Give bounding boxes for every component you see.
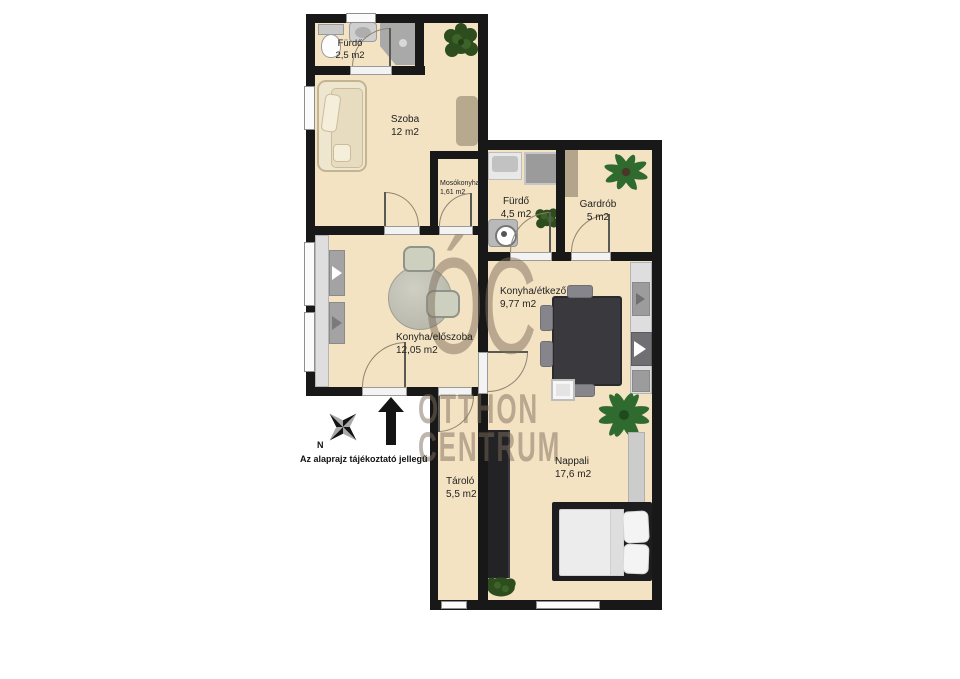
room-label-gardrob: Gardrób 5 m2 [563, 199, 633, 224]
stool-top [556, 384, 570, 396]
room-label-konyha-eloszoba: Konyha/előszoba 12,05 m2 [396, 332, 473, 357]
room-area: 1,61 m2 [440, 189, 480, 198]
door-leaf [470, 193, 472, 226]
pillow [622, 510, 650, 543]
room-area: 12 m2 [370, 127, 440, 140]
room-label-mosokonyha: Mosókonyha 1,61 m2 [440, 180, 480, 198]
wall [415, 23, 424, 66]
room-name: Nappali [555, 456, 591, 469]
door-threshold [362, 387, 407, 396]
room-area: 4,5 m2 [488, 209, 544, 222]
compass-icon [322, 406, 364, 448]
stool [551, 379, 575, 401]
window [346, 13, 376, 23]
chair [540, 341, 553, 367]
floorplan-canvas: ÓC OTTHON CENTRUM Fürdő 2,5 m2 Szoba 12 … [0, 0, 960, 679]
watermark-line2: CENTRUM [418, 426, 561, 468]
kitchen-appliance [329, 250, 345, 296]
door-leaf [549, 212, 551, 252]
room-area: 17,6 m2 [555, 469, 591, 482]
door-threshold [350, 66, 392, 75]
shower-drain [399, 39, 407, 47]
kitchen-appliance [329, 302, 345, 344]
door-leaf [384, 192, 386, 226]
room-label-tarolo: Tároló 5,5 m2 [446, 476, 477, 501]
window [441, 601, 467, 609]
wall [306, 14, 478, 23]
kitchen-counter [315, 235, 329, 387]
bathtub-basin [492, 156, 518, 172]
sofa-cushion [333, 144, 351, 162]
room-name: Fürdő [488, 196, 544, 209]
room-name: Fürdő [322, 38, 378, 50]
window [536, 601, 600, 609]
kitchen-appliance [632, 282, 650, 316]
room-area: 12,05 m2 [396, 345, 473, 358]
plant-icon [442, 22, 480, 62]
room-area: 9,77 m2 [500, 299, 566, 312]
rug [628, 432, 645, 504]
room-label-furdo-small: Fürdő 2,5 m2 [322, 38, 378, 62]
room-name: Mosókonyha [440, 180, 480, 189]
room-area: 5,5 m2 [446, 489, 477, 502]
window [304, 86, 315, 130]
room-name: Tároló [446, 476, 477, 489]
door-threshold [384, 226, 420, 235]
north-arrow-icon [377, 397, 405, 445]
wall [478, 140, 662, 150]
cabinet [456, 96, 478, 146]
wall [652, 140, 662, 610]
appliance-marker [636, 293, 645, 305]
chair [567, 285, 593, 298]
room-label-konyha-etkezo: Konyha/étkező 9,77 m2 [500, 286, 566, 311]
door-threshold [571, 252, 611, 261]
appliance-marker [634, 341, 646, 357]
bathtub [488, 152, 522, 180]
appliance-marker [332, 266, 342, 280]
room-area: 2,5 m2 [322, 50, 378, 62]
window [304, 242, 315, 306]
plant-icon [484, 574, 518, 600]
kitchen-appliance [632, 370, 650, 392]
appliance-marker [332, 316, 342, 330]
wall [430, 151, 438, 226]
door-leaf [389, 28, 391, 67]
room-name: Konyha/étkező [500, 286, 566, 299]
disclaimer-text: Az alaprajz tájékoztató jellegű [300, 454, 428, 464]
wardrobe [565, 150, 578, 197]
bed [552, 502, 652, 581]
room-label-szoba: Szoba 12 m2 [370, 114, 440, 139]
plant-icon [602, 150, 650, 194]
window [304, 312, 315, 372]
sofa [317, 80, 367, 172]
room-name: Gardrób [563, 199, 633, 212]
shower [524, 152, 558, 185]
room-name: Konyha/előszoba [396, 332, 473, 345]
wall [430, 151, 478, 159]
pillow [622, 544, 649, 575]
room-name: Szoba [370, 114, 440, 127]
room-area: 5 m2 [563, 212, 633, 225]
room-label-furdo-large: Fürdő 4,5 m2 [488, 196, 544, 221]
refrigerator [631, 332, 652, 366]
compass-north-label: N [317, 440, 324, 450]
room-label-nappali: Nappali 17,6 m2 [555, 456, 591, 481]
